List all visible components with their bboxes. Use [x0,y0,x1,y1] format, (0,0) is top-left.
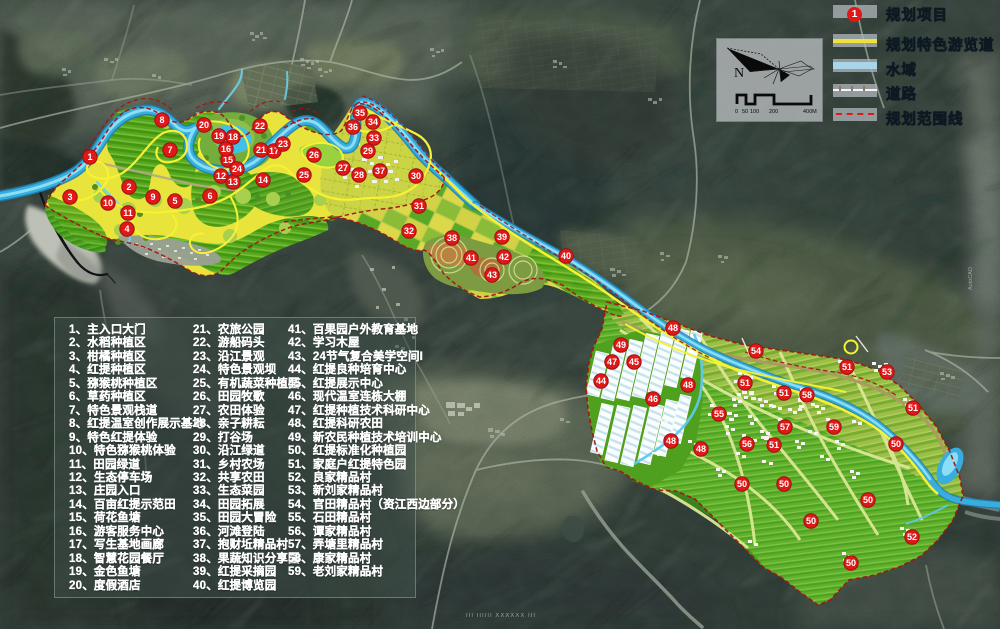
svg-text:25: 25 [299,170,309,180]
svg-text:55: 55 [714,409,724,419]
svg-text:56: 56 [742,439,752,449]
svg-text:51: 51 [908,403,918,413]
svg-text:N: N [734,66,744,81]
svg-text:50: 50 [779,479,789,489]
svg-text:5: 5 [172,196,177,206]
svg-text:26: 26 [309,150,319,160]
svg-text:50: 50 [742,109,748,115]
svg-text:7: 7 [167,145,172,155]
svg-text:48: 48 [683,380,693,390]
svg-text:9: 9 [150,192,155,202]
svg-text:4: 4 [124,224,129,234]
svg-text:16: 16 [221,144,231,154]
svg-text:48: 48 [668,323,678,333]
svg-text:21: 21 [256,145,266,155]
svg-text:53: 53 [882,367,892,377]
svg-text:36: 36 [348,122,358,132]
svg-text:AutoCAD: AutoCAD [968,267,974,290]
svg-text:14: 14 [258,175,268,185]
svg-text:51: 51 [842,362,852,372]
svg-text:51: 51 [740,378,750,388]
svg-text:50: 50 [846,558,856,568]
svg-text:32: 32 [404,226,414,236]
svg-text:0: 0 [735,109,738,115]
svg-text:19: 19 [214,131,224,141]
svg-text:59: 59 [829,422,839,432]
svg-text:39: 39 [497,232,507,242]
svg-text:50: 50 [863,495,873,505]
svg-text:41: 41 [466,253,476,263]
svg-text:38: 38 [447,233,457,243]
svg-text:1: 1 [87,152,92,162]
svg-text:27: 27 [338,163,348,173]
svg-text:29: 29 [363,146,373,156]
svg-text:43: 43 [487,270,497,280]
svg-text:20: 20 [199,120,209,130]
svg-text:3: 3 [67,192,72,202]
svg-text:37: 37 [375,166,385,176]
svg-text:100: 100 [750,109,759,115]
svg-text:III IIIIII XXXXXX III: III IIIIII XXXXXX III [466,613,536,619]
svg-text:10: 10 [103,198,113,208]
svg-text:51: 51 [779,388,789,398]
svg-text:51: 51 [769,440,779,450]
svg-text:44: 44 [596,376,606,386]
svg-text:40: 40 [561,251,571,261]
svg-text:48: 48 [666,436,676,446]
svg-text:58: 58 [802,390,812,400]
svg-text:31: 31 [414,201,424,211]
svg-text:23: 23 [278,139,288,149]
svg-text:13: 13 [228,177,238,187]
svg-text:34: 34 [368,117,378,127]
svg-text:49: 49 [616,340,626,350]
svg-text:50: 50 [891,439,901,449]
svg-text:48: 48 [696,444,706,454]
svg-text:24: 24 [232,164,242,174]
svg-text:47: 47 [607,357,617,367]
svg-text:46: 46 [648,394,658,404]
svg-text:11: 11 [123,208,133,218]
svg-text:57: 57 [780,422,790,432]
svg-text:8: 8 [159,115,164,125]
svg-text:33: 33 [369,133,379,143]
svg-text:50: 50 [737,479,747,489]
svg-text:35: 35 [355,108,365,118]
svg-text:28: 28 [354,170,364,180]
svg-text:400M: 400M [803,109,817,115]
svg-text:45: 45 [629,357,639,367]
svg-text:50: 50 [806,516,816,526]
svg-text:52: 52 [907,532,917,542]
svg-text:2: 2 [126,182,131,192]
svg-text:22: 22 [255,121,265,131]
svg-text:18: 18 [228,132,238,142]
svg-text:54: 54 [751,346,761,356]
svg-text:12: 12 [216,171,226,181]
svg-text:200: 200 [769,109,778,115]
svg-text:42: 42 [499,252,509,262]
svg-text:6: 6 [207,191,212,201]
svg-text:30: 30 [411,171,421,181]
